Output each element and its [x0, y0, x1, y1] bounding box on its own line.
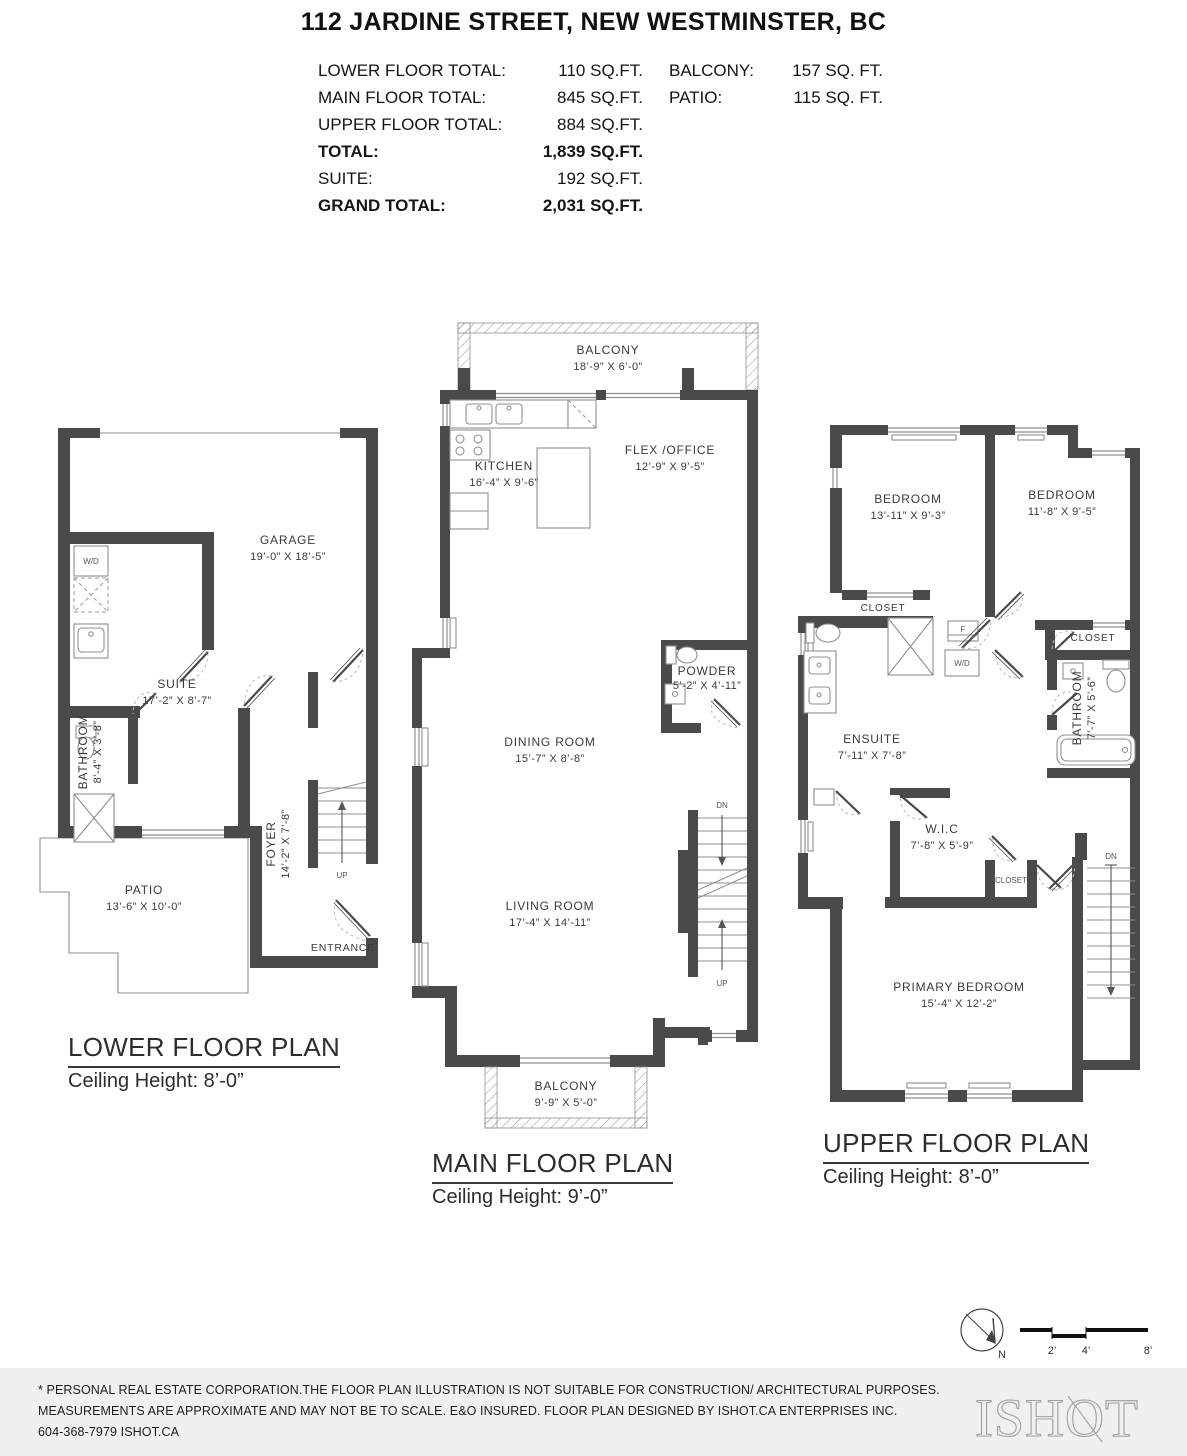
bathroom-label: BATHROOM — [76, 715, 90, 790]
up-label: UP — [336, 871, 347, 880]
flex-office-label: FLEX /OFFICE — [625, 443, 715, 457]
summary-label: PATIO: — [669, 88, 771, 108]
disclaimer-line3: 604-368-7979 ISHOT.CA — [38, 1422, 940, 1443]
ensuite-dims: 7’-11” X 7’-8” — [838, 750, 906, 762]
patio-outline — [40, 838, 248, 993]
shower — [74, 794, 114, 842]
dn-label: DN — [716, 801, 728, 810]
suite-label: SUITE — [157, 677, 196, 691]
ishot-logo: ISHOT — [972, 1388, 1142, 1450]
scale-4ft: 4’ — [1082, 1345, 1091, 1357]
north-arrow-icon: N — [961, 1309, 1006, 1361]
summary-value: 845 SQ.FT. — [518, 88, 643, 108]
foyer-dims: 14’-2” X 7’-8” — [280, 809, 292, 878]
upper-plan-title-block: UPPER FLOOR PLAN Ceiling Height: 8’-0” — [823, 1128, 1089, 1189]
primary-bedroom-label: PRIMARY BEDROOM — [893, 980, 1025, 994]
entrance-label: ENTRANCE — [311, 942, 375, 954]
powder-label: POWDER — [678, 664, 737, 678]
balcony-bottom-dims: 9’-9” X 5’-0” — [535, 1097, 598, 1109]
wic-dims: 7’-8” X 5’-9” — [911, 840, 974, 852]
lower-plan-title: LOWER FLOOR PLAN — [68, 1032, 340, 1068]
washer-dryer-upper: W/D — [945, 650, 979, 676]
living-room-dims: 17’-4” X 14’-11” — [509, 917, 590, 929]
fridge — [450, 493, 488, 529]
summary-row: SUITE: 192 SQ.FT. — [318, 165, 898, 192]
page-title: 112 JARDINE STREET, NEW WESTMINSTER, BC — [0, 8, 1187, 37]
summary-label: UPPER FLOOR TOTAL: — [318, 115, 518, 135]
summary-label: SUITE: — [318, 169, 518, 189]
compass-and-scale: N 2’ 4’ 8’ — [950, 1300, 1180, 1370]
balcony-bottom-label: BALCONY — [535, 1079, 598, 1093]
main-plan-title: MAIN FLOOR PLAN — [432, 1148, 673, 1184]
north-label: N — [998, 1349, 1006, 1361]
flex-office-dims: 12’-9” X 9’-5” — [635, 461, 704, 473]
bedroom1-dims: 13’-11” X 9’-3” — [871, 510, 946, 522]
wd-label: W/D — [954, 659, 970, 668]
summary-value: 192 SQ.FT. — [518, 169, 643, 189]
upper-plan-title: UPPER FLOOR PLAN — [823, 1128, 1089, 1164]
summary-value: 115 SQ. FT. — [771, 88, 883, 108]
dining-room-label: DINING ROOM — [504, 735, 595, 749]
summary-value: 884 SQ.FT. — [518, 115, 643, 135]
lower-plan-title-block: LOWER FLOOR PLAN Ceiling Height: 8’-0” — [68, 1032, 340, 1093]
garage-label: GARAGE — [260, 533, 316, 547]
summary-label: LOWER FLOOR TOTAL: — [318, 61, 518, 81]
area-summary: LOWER FLOOR TOTAL: 110 SQ.FT. BALCONY: 1… — [318, 57, 898, 219]
patio-dims: 13’-6” X 10’-0” — [106, 901, 182, 913]
summary-row-total: TOTAL: 1,839 SQ.FT. — [318, 138, 898, 165]
primary-bedroom-dims: 15’-4” X 12’-2” — [921, 998, 997, 1010]
wd-label: W/D — [83, 557, 99, 566]
ensuite-fixtures — [804, 618, 933, 805]
bathroom-dims: 8’-4” X 3’-8” — [92, 721, 104, 784]
foyer-label: FOYER — [264, 821, 278, 866]
scale-8ft: 8’ — [1144, 1345, 1153, 1357]
main-floor-plan: DN UP BALCONY 18’-9” X 6’-0” KITCHEN 16’… — [400, 318, 780, 1142]
summary-row: LOWER FLOOR TOTAL: 110 SQ.FT. BALCONY: 1… — [318, 57, 898, 84]
suite-sink-counter — [74, 624, 108, 658]
footer-bar: * PERSONAL REAL ESTATE CORPORATION.THE F… — [0, 1368, 1187, 1456]
stairs-down: DN — [1087, 852, 1135, 998]
scale-bar: 2’ 4’ 8’ — [1020, 1327, 1152, 1357]
summary-value: 110 SQ.FT. — [518, 61, 643, 81]
disclaimer-line2: MEASUREMENTS ARE APPROXIMATE AND MAY NOT… — [38, 1401, 940, 1422]
patio-label: PATIO — [125, 883, 163, 897]
scale-2ft: 2’ — [1048, 1345, 1057, 1357]
summary-label: GRAND TOTAL: — [318, 196, 518, 216]
summary-value: 157 SQ. FT. — [771, 61, 883, 81]
wic-label: W.I.C — [925, 822, 958, 836]
dining-room-dims: 15’-7” X 8’-8” — [515, 753, 584, 765]
kitchen-label: KITCHEN — [475, 459, 533, 473]
living-room-label: LIVING ROOM — [506, 899, 595, 913]
ensuite-label: ENSUITE — [843, 732, 901, 746]
bathroom-label: BATHROOM — [1070, 671, 1084, 746]
upper-floor-plan: F W/D DN — [790, 413, 1162, 1137]
floor-plan-page: 112 JARDINE STREET, NEW WESTMINSTER, BC … — [0, 0, 1187, 1456]
stairs-up: UP — [318, 782, 366, 880]
bathroom-dims: 7’-7” X 5’-6” — [1086, 677, 1098, 740]
stove — [450, 430, 490, 460]
closet-right-label: CLOSET — [1071, 633, 1116, 644]
lower-floor-plan: W/D — [30, 420, 410, 1020]
disclaimer-text: * PERSONAL REAL ESTATE CORPORATION.THE F… — [38, 1380, 940, 1443]
balcony-top-label: BALCONY — [577, 343, 640, 357]
disclaimer-line1: * PERSONAL REAL ESTATE CORPORATION.THE F… — [38, 1380, 940, 1401]
suite-dims: 17’-2” X 8’-7” — [142, 695, 211, 707]
dn-label: DN — [1105, 852, 1117, 861]
summary-row: UPPER FLOOR TOTAL: 884 SQ.FT. — [318, 111, 898, 138]
bedroom2-label: BEDROOM — [1028, 488, 1096, 502]
suite-window — [142, 830, 224, 835]
summary-value: 2,031 SQ.FT. — [518, 196, 643, 216]
summary-row: MAIN FLOOR TOTAL: 845 SQ.FT. PATIO: 115 … — [318, 84, 898, 111]
bedroom2-dims: 11’-8” X 9’-5” — [1028, 506, 1096, 518]
washer-dryer: W/D — [74, 546, 108, 576]
closet-left-label: CLOSET — [861, 603, 906, 614]
kitchen-counter-sink — [450, 400, 596, 428]
furnace-label: F — [961, 625, 966, 634]
bedroom1-label: BEDROOM — [874, 492, 942, 506]
ishot-logo-text: ISHOT — [975, 1388, 1139, 1448]
powder-dims: 5’-2” X 4’-11” — [673, 680, 741, 692]
upper-plan-subtitle: Ceiling Height: 8’-0” — [823, 1166, 1089, 1189]
lower-plan-subtitle: Ceiling Height: 8’-0” — [68, 1070, 340, 1093]
summary-row-grand-total: GRAND TOTAL: 2,031 SQ.FT. — [318, 192, 898, 219]
main-plan-title-block: MAIN FLOOR PLAN Ceiling Height: 9’-0” — [432, 1148, 673, 1209]
utility-closet — [74, 578, 108, 612]
kitchen-island — [537, 448, 590, 528]
closet-small-label: CLOSET — [995, 876, 1027, 885]
summary-label: MAIN FLOOR TOTAL: — [318, 88, 518, 108]
stairs-main: DN UP — [698, 801, 747, 988]
main-plan-subtitle: Ceiling Height: 9’-0” — [432, 1186, 673, 1209]
summary-value: 1,839 SQ.FT. — [518, 142, 643, 162]
garage-dims: 19’-0” X 18’-5” — [250, 551, 326, 563]
summary-label: BALCONY: — [669, 61, 771, 81]
kitchen-dims: 16’-4” X 9’-6” — [469, 477, 538, 489]
up-label: UP — [716, 979, 727, 988]
summary-label: TOTAL: — [318, 142, 518, 162]
balcony-top-dims: 18’-9” X 6’-0” — [573, 361, 642, 373]
